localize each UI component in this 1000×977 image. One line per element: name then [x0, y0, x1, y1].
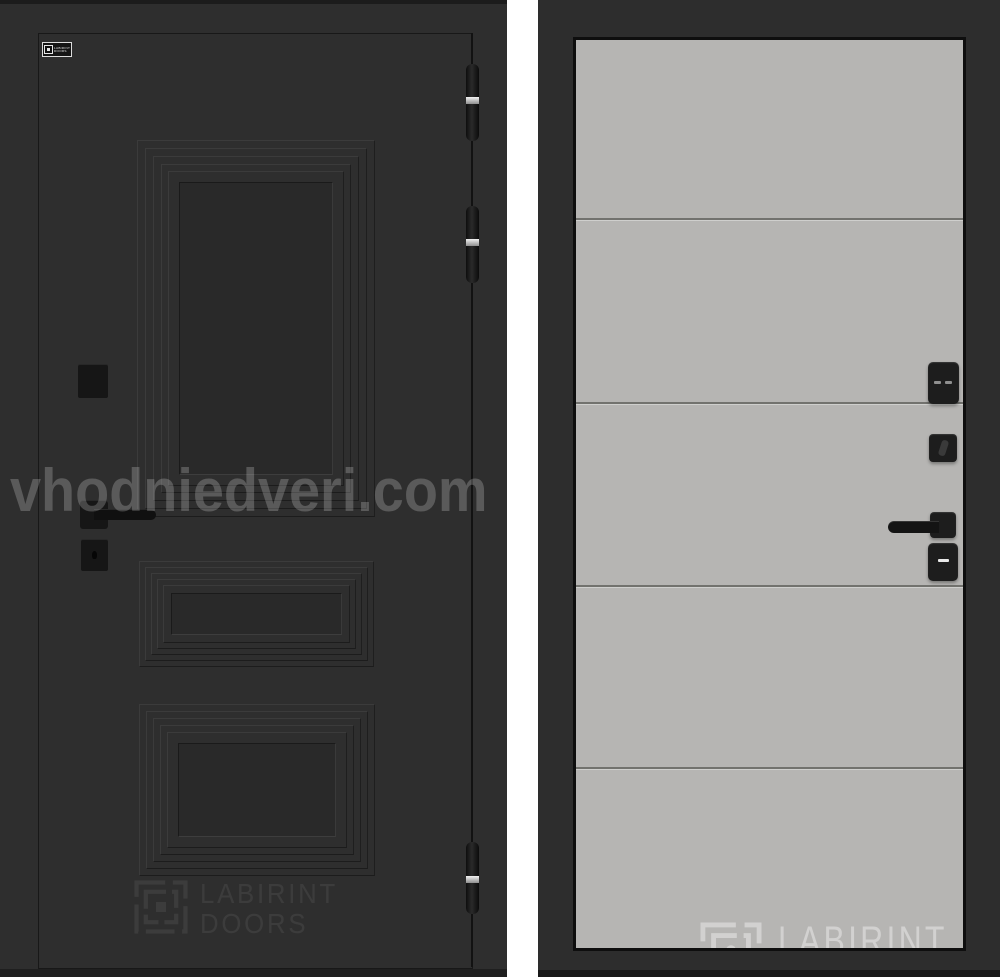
indicator-dash — [934, 381, 941, 384]
site-watermark: vhodniedveri.com — [10, 456, 488, 525]
brand-watermark-right: LABIRINT DOORS — [696, 922, 966, 951]
cylinder-escutcheon — [81, 539, 108, 571]
brand-plate: LABIRINT DOORS — [42, 42, 72, 57]
keyhole — [92, 551, 97, 559]
hinge-middle — [466, 206, 479, 283]
indicator-dash — [945, 381, 952, 384]
gray-door-photo: LABIRINT DOORS — [538, 0, 1000, 977]
hinge-top — [466, 64, 479, 141]
brand-watermark-left: LABIRINT DOORS — [134, 880, 350, 938]
dark-door-photo: LABIRINT DOORS — [0, 0, 507, 977]
horizontal-groove — [576, 585, 963, 587]
horizontal-groove — [576, 402, 963, 404]
gray-door-slab: LABIRINT DOORS — [573, 37, 966, 951]
image-divider — [507, 0, 538, 977]
brand-plate-line2: DOORS — [54, 50, 70, 53]
panel-field — [171, 593, 342, 635]
door-panel-bottom — [139, 704, 375, 876]
key-escutcheon — [928, 543, 958, 581]
horizontal-groove — [576, 218, 963, 220]
hinge-ring — [466, 239, 479, 246]
deadbolt-escutcheon — [78, 364, 108, 398]
wc-indicator-escutcheon — [928, 362, 959, 404]
brand-plate-maze-icon — [44, 45, 53, 54]
thumbturn-knob — [938, 439, 950, 456]
key-slot — [938, 559, 949, 562]
panel-field — [178, 743, 336, 837]
horizontal-groove — [576, 767, 963, 769]
photo-top-shadow — [0, 0, 507, 4]
brand-watermark-line1: LABIRINT — [778, 922, 948, 951]
hinge-ring — [466, 97, 479, 104]
door-panel-middle — [139, 561, 374, 667]
hinge-ring — [466, 876, 479, 883]
thumbturn-escutcheon — [929, 434, 957, 462]
labirint-maze-icon — [134, 880, 188, 934]
brand-watermark-line1: LABIRINT — [200, 880, 338, 908]
brand-watermark-line2: DOORS — [200, 910, 338, 938]
labirint-maze-icon — [696, 922, 766, 951]
photo-bottom-shadow — [0, 969, 507, 977]
brand-plate-text: LABIRINT DOORS — [54, 46, 70, 52]
door-handle-lever — [888, 521, 939, 533]
photo-bottom-shadow — [538, 970, 1000, 977]
hinge-bottom — [466, 842, 479, 914]
panel-field — [179, 182, 333, 475]
